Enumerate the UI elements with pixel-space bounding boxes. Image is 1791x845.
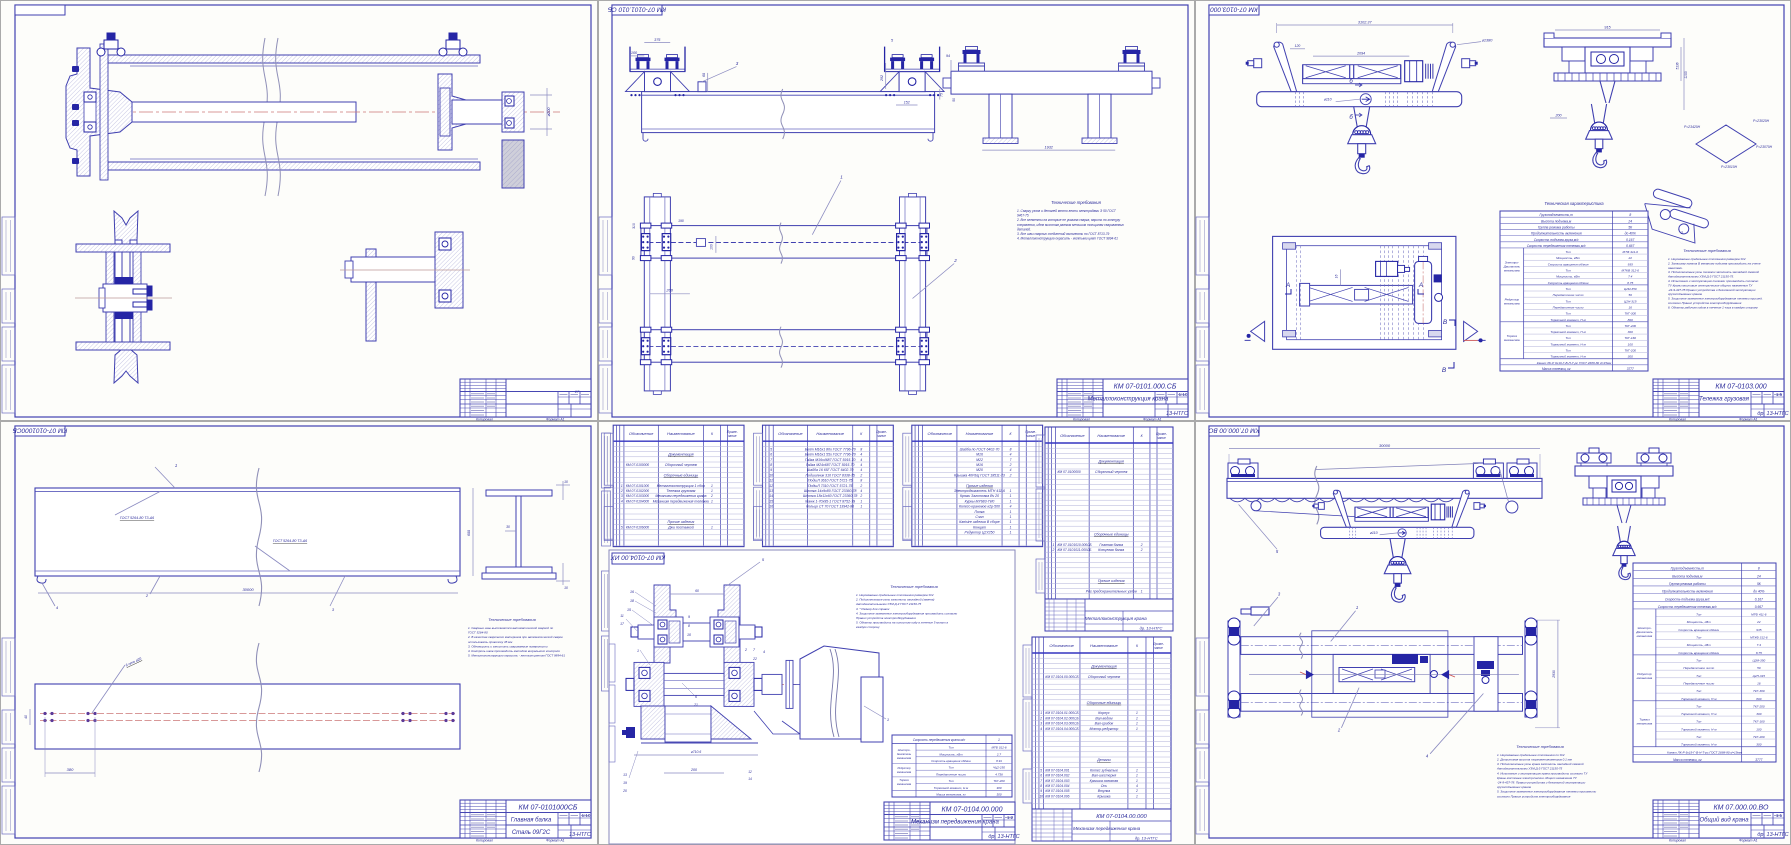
svg-text:1: 1 (621, 484, 623, 488)
svg-text:механизма: механизма (897, 756, 912, 760)
svg-text:Кольцо СТ 70 ГОСТ 13942-86: Кольцо СТ 70 ГОСТ 13942-86 (806, 505, 854, 509)
svg-text:Наименование: Наименование (966, 431, 994, 436)
svg-text:60: 60 (695, 589, 699, 593)
svg-text:Джи поставкой: Джи поставкой (667, 525, 694, 529)
svg-text:каждую сторону: каждую сторону (856, 625, 880, 629)
svg-text:2: 2 (1140, 543, 1143, 547)
svg-text:1: 1 (175, 463, 177, 468)
svg-text:Передаточное число: Передаточное число (1553, 305, 1584, 309)
svg-text:КМ 07-0104.004: КМ 07-0104.004 (1045, 784, 1069, 788)
svg-text:Скорость вращения об/мин: Скорость вращения об/мин (1678, 651, 1719, 655)
svg-text:4: 4 (621, 499, 623, 503)
svg-text:КМ 07-0104.02.000СБ: КМ 07-0104.02.000СБ (1045, 716, 1079, 720)
svg-text:1: 1 (1010, 525, 1012, 529)
svg-text:1: 1 (711, 489, 713, 493)
svg-text:⌀110: ⌀110 (1370, 531, 1378, 535)
svg-text:М20: М20 (976, 468, 983, 472)
svg-text:16: 16 (1629, 305, 1633, 309)
svg-text:7.4: 7.4 (1757, 643, 1762, 647)
svg-text:Сборочные единицы: Сборочные единицы (1087, 701, 1122, 705)
svg-text:4: 4 (56, 605, 59, 610)
svg-text:4: 4 (1010, 453, 1012, 457)
svg-text:1. Сварные швы выполняются авт: 1. Сварные швы выполняются автоматическо… (468, 626, 554, 630)
svg-text:1: 1 (1010, 520, 1012, 524)
svg-text:Шпонка 14х9х80 ГОСТ 23360-78: Шпонка 14х9х80 ГОСТ 23360-78 (804, 489, 857, 493)
svg-text:ГОСТ 5264-80: ГОСТ 5264-80 (468, 631, 488, 635)
svg-text:Формат А1: Формат А1 (1739, 839, 1758, 843)
svg-text:Крышка сквозная: Крышка сквозная (1090, 779, 1119, 783)
svg-text:50: 50 (1757, 666, 1761, 670)
svg-text:Механизм передвижения тележки: Механизм передвижения тележки (653, 499, 709, 503)
svg-text:Прочие изделия: Прочие изделия (668, 520, 695, 524)
svg-text:P=23070Н: P=23070Н (1756, 145, 1773, 149)
svg-text:8.75: 8.75 (1756, 651, 1762, 655)
svg-text:Передаточное число: Передаточное число (1683, 666, 1714, 670)
svg-text:Концат: Концат (973, 525, 986, 529)
svg-text:8: 8 (1010, 447, 1012, 451)
svg-text:375: 375 (654, 38, 661, 42)
svg-text:КМ 07-0101.010 СБ: КМ 07-0101.010 СБ (608, 6, 666, 13)
svg-text:Прочие изделия: Прочие изделия (966, 484, 993, 488)
svg-text:Технические требования: Технические требования (488, 617, 536, 622)
svg-text:Главная балка: Главная балка (1099, 543, 1123, 547)
svg-text:5: 5 (770, 447, 772, 451)
svg-text:М22: М22 (976, 458, 983, 462)
svg-text:30: 30 (506, 525, 510, 529)
svg-text:1:5: 1:5 (1776, 392, 1783, 397)
svg-text:Крюки Заготовка Вч 20: Крюки Заготовка Вч 20 (960, 494, 999, 498)
svg-text:9: 9 (688, 615, 690, 619)
svg-text:1: 1 (1136, 716, 1138, 720)
svg-text:Ц2Н-315: Ц2Н-315 (1753, 674, 1766, 678)
svg-text:механизма: механизма (1637, 676, 1653, 680)
svg-text:Манж 1-70х95-1 ГОСТ 8752-79: Манж 1-70х95-1 ГОСТ 8752-79 (805, 499, 855, 503)
svg-text:9467-75: 9467-75 (1017, 214, 1029, 218)
svg-text:3. Обезжирить и зачистить свар: 3. Обезжирить и зачистить свариваемые по… (468, 644, 548, 648)
svg-text:грузоподъемных кранов: грузоподъемных кранов (1668, 292, 1702, 296)
svg-text:Тип: Тип (1565, 299, 1571, 303)
svg-text:КМ 07-0100000: КМ 07-0100000 (626, 463, 649, 467)
svg-text:Рег предохранительных узлов: Рег предохранительных узлов (1086, 590, 1137, 594)
svg-text:КМ 07-0101011.000СБ: КМ 07-0101011.000СБ (1057, 548, 1092, 552)
svg-text:Тип: Тип (1565, 312, 1571, 316)
svg-text:ТКГ-160: ТКГ-160 (1624, 336, 1636, 340)
svg-text:2. Все элементы на которые не: 2. Все элементы на которые не указана св… (1016, 218, 1120, 222)
svg-text:ТКГ-200: ТКГ-200 (1624, 349, 1636, 353)
svg-text:Болт М16х1 80х ГОСТ 7796-70: Болт М16х1 80х ГОСТ 7796-70 (805, 447, 856, 451)
svg-text:13: 13 (769, 489, 773, 493)
svg-text:Тип: Тип (1696, 613, 1702, 617)
svg-text:Мотор-редуктор: Мотор-редуктор (1090, 727, 1119, 731)
svg-text:Тип: Тип (948, 766, 953, 770)
svg-text:согласно Правил устройств элек: согласно Правил устройств электрооборудо… (1668, 301, 1742, 305)
svg-text:7: 7 (770, 458, 772, 462)
svg-text:2: 2 (145, 593, 149, 598)
svg-text:механизма: механизма (897, 770, 912, 774)
svg-text:Автодвигательными УЗМ Д-3 ГОСТ: Автодвигательными УЗМ Д-3 ГОСТ 21150-75 (855, 602, 922, 606)
svg-text:КМ 07-0103.000: КМ 07-0103.000 (1715, 384, 1766, 391)
svg-text:1: 1 (1040, 711, 1042, 715)
svg-text:3102.37: 3102.37 (1358, 21, 1373, 25)
svg-text:Вал-грибок: Вал-грибок (1095, 722, 1114, 726)
svg-text:В: В (1442, 367, 1447, 374)
svg-text:94: 94 (946, 54, 950, 58)
svg-text:Передаточное число: Передаточное число (936, 772, 966, 776)
svg-text:Металлоконструкция крана: Металлоконструкция крана (1088, 397, 1169, 403)
svg-text:Тип: Тип (1696, 735, 1702, 739)
svg-text:4. Контроль швов производить м: 4. Контроль швов производить методом виз… (468, 649, 560, 653)
svg-text:КМ 07-0103000: КМ 07-0103000 (626, 494, 649, 498)
svg-text:21: 21 (693, 703, 698, 707)
svg-text:9: 9 (1040, 789, 1042, 793)
svg-text:4. Защитное заземление электро: 4. Защитное заземление электрооборудован… (856, 611, 958, 615)
svg-text:3: 3 (736, 61, 739, 66)
svg-text:1: 1 (1010, 515, 1012, 519)
svg-text:200: 200 (1555, 114, 1562, 118)
svg-text:Скорость вращения об/мин: Скорость вращения об/мин (931, 759, 971, 763)
svg-text:КМ 07-0101000: КМ 07-0101000 (626, 484, 649, 488)
svg-text:Ось: Ось (1101, 784, 1107, 788)
svg-text:2: 2 (859, 494, 862, 498)
svg-text:60: 60 (702, 73, 706, 77)
svg-text:300: 300 (996, 793, 1001, 797)
svg-text:Краны мостовые электрические: Краны мостовые электрические общего назн… (1497, 776, 1578, 780)
svg-text:2: 2 (1052, 548, 1055, 552)
svg-text:19: 19 (623, 781, 627, 785)
svg-text:1100: 1100 (1684, 71, 1688, 78)
svg-text:Электродвигатель МТН 411-6: Электродвигатель МТН 411-6 (954, 489, 1005, 493)
svg-text:P=23420Н: P=23420Н (1684, 125, 1701, 129)
svg-text:6: 6 (1040, 774, 1042, 778)
svg-text:Мощность, кВт: Мощность, кВт (1687, 643, 1711, 647)
svg-text:24: 24 (1627, 219, 1632, 223)
svg-text:грузоподъемных кранов: грузоподъемных кранов (1497, 785, 1531, 789)
svg-text:Тормозной момент, Н·м: Тормозной момент, Н·м (1681, 727, 1717, 731)
svg-text:10: 10 (769, 473, 773, 477)
svg-text:КМ 07.000.00 ВО: КМ 07.000.00 ВО (1208, 427, 1259, 434)
svg-text:Полка: Полка (974, 510, 984, 514)
svg-text:Механизм передвижения крана: Механизм передвижения крана (655, 494, 706, 498)
svg-text:800: 800 (1756, 697, 1761, 701)
svg-text:др. 13-НТГС: др. 13-НТГС (1757, 832, 1788, 838)
svg-text:Тип: Тип (948, 746, 953, 750)
svg-text:согласно Правил устройств элек: согласно Правил устройств электрооборудо… (1497, 794, 1571, 798)
svg-text:1: 1 (1010, 531, 1012, 535)
svg-text:КМ 07-0104.00.000: КМ 07-0104.00.000 (942, 807, 1003, 814)
svg-text:зависовки.: зависовки. (1667, 266, 1683, 270)
svg-text:Скорость вращения об/мин: Скорость вращения об/мин (1548, 281, 1589, 285)
svg-text:КМ 07-0104.04.000СБ: КМ 07-0104.04.000СБ (1045, 727, 1079, 731)
svg-text:Сборочный чертеж: Сборочный чертеж (1088, 675, 1121, 679)
svg-text:8: 8 (860, 447, 862, 451)
svg-text:Шайба по ГОСТ 6402-70: Шайба по ГОСТ 6402-70 (960, 447, 1000, 451)
svg-text:Крышка 40РБЦ ГОСТ 18511-73: Крышка 40РБЦ ГОСТ 18511-73 (954, 473, 1005, 477)
svg-text:КМ 07-0104.005: КМ 07-0104.005 (1045, 789, 1069, 793)
svg-text:ПодшЛ 7310 ГОСТ 5721-75: ПодшЛ 7310 ГОСТ 5721-75 (808, 484, 852, 488)
svg-text:5136: 5136 (1676, 62, 1680, 69)
svg-text:3. Все швы сварных соединений: 3. Все швы сварных соединений выполнять … (1017, 232, 1110, 236)
svg-text:КМ 07-0104.001: КМ 07-0104.001 (1045, 768, 1069, 772)
svg-text:Мощность, кВт: Мощность, кВт (939, 752, 963, 756)
svg-text:100: 100 (1756, 727, 1761, 731)
svg-text:1. Неуказанные предельные откл: 1. Неуказанные предельные отклонения раз… (1668, 257, 1746, 261)
svg-text:Крышка: Крышка (1097, 794, 1110, 798)
svg-text:3777: 3777 (1627, 367, 1634, 371)
svg-text:190: 190 (678, 219, 684, 223)
svg-text:8: 8 (1758, 567, 1760, 571)
svg-text:2: 2 (1009, 463, 1012, 467)
svg-text:935: 935 (1756, 628, 1761, 632)
svg-text:МТФ 411-6: МТФ 411-6 (1751, 613, 1767, 617)
svg-text:механизма: механизма (1504, 268, 1520, 272)
svg-text:16: 16 (769, 505, 773, 509)
svg-text:ЧЦ2-250: ЧЦ2-250 (993, 766, 1005, 770)
svg-text:Тип: Тип (1696, 720, 1702, 724)
svg-text:40: 40 (24, 715, 28, 719)
svg-text:2930: 2930 (1552, 670, 1556, 679)
svg-text:4: 4 (763, 650, 765, 654)
svg-text:5. Обкатку производить на холо: 5. Обкатку производить на холостом ходу … (856, 621, 948, 625)
svg-text:17: 17 (575, 389, 580, 394)
svg-text:8: 8 (860, 479, 862, 483)
svg-text:механизма: механизма (1637, 634, 1653, 638)
svg-text:6 отв ⌀20: 6 отв ⌀20 (125, 657, 142, 668)
svg-text:МТФ 411-6: МТФ 411-6 (1623, 250, 1639, 254)
svg-text:935: 935 (1628, 262, 1633, 266)
svg-text:800: 800 (1628, 318, 1633, 322)
svg-text:1: 1 (711, 484, 713, 488)
svg-text:Тип: Тип (1696, 689, 1702, 693)
svg-text:механизма: механизма (1504, 338, 1520, 342)
svg-text:P=23020Н: P=23020Н (1753, 119, 1770, 123)
svg-text:3: 3 (1278, 592, 1281, 597)
svg-text:Тип: Тип (948, 779, 953, 783)
svg-text:Скорость передвижения тележки,: Скорость передвижения тележки,м/с (1527, 244, 1586, 248)
svg-text:Тормозной момент, Н·м: Тормозной момент, Н·м (1550, 330, 1586, 334)
svg-text:КМ 07-0104000: КМ 07-0104000 (626, 499, 649, 503)
svg-text:0.167: 0.167 (1755, 597, 1763, 601)
svg-text:5: 5 (621, 525, 623, 529)
svg-text:Масса тележки, кг: Масса тележки, кг (1673, 758, 1702, 762)
svg-text:1: 1 (1356, 605, 1358, 610)
svg-text:Высота подъема,м: Высота подъема,м (1672, 574, 1703, 578)
svg-text:7: 7 (1010, 458, 1012, 462)
svg-text:механизма: механизма (1637, 722, 1653, 726)
svg-text:14: 14 (769, 494, 773, 498)
svg-text:1: 1 (1010, 489, 1012, 493)
svg-text:1: 1 (1010, 494, 1012, 498)
svg-text:4.736: 4.736 (995, 772, 1003, 776)
svg-text:1: 1 (840, 175, 843, 180)
svg-text:КМ 07.000.00.ВО: КМ 07.000.00.ВО (1714, 805, 1770, 812)
svg-text:КМ 07-0104.01.000СБ: КМ 07-0104.01.000СБ (1045, 711, 1079, 715)
svg-text:1. Неуказанные предельные откл: 1. Неуказанные предельные отклонения по … (1497, 753, 1565, 757)
svg-text:Скорость вращения об/мин: Скорость вращения об/мин (1678, 628, 1719, 632)
svg-text:310: 310 (632, 223, 636, 229)
svg-text:ТКГ-200: ТКГ-200 (1624, 324, 1636, 328)
svg-text:6: 6 (770, 453, 772, 457)
svg-text:др. 13-НТГС: др. 13-НТГС (1140, 626, 1163, 631)
svg-text:1. Неуказанные предельные откл: 1. Неуказанные предельные отклонения раз… (856, 593, 934, 597)
svg-text:10: 10 (564, 480, 568, 484)
svg-text:3: 3 (621, 494, 623, 498)
svg-text:Скорость вращения об/мин: Скорость вращения об/мин (1548, 262, 1589, 266)
svg-text:15: 15 (627, 608, 631, 612)
svg-text:Вал ведом: Вал ведом (1095, 716, 1113, 720)
svg-text:М16: М16 (976, 463, 983, 467)
svg-text:ТКГ-200: ТКГ-200 (1753, 735, 1765, 739)
svg-text:50: 50 (1629, 293, 1633, 297)
svg-text:Документация: Документация (1098, 460, 1124, 464)
svg-text:Скорость подъема груза,м/с: Скорость подъема груза,м/с (1665, 597, 1710, 601)
svg-text:0.667: 0.667 (1626, 244, 1634, 248)
svg-text:1: 1 (860, 499, 862, 503)
svg-text:В: В (1443, 319, 1448, 326)
svg-text:8.91: 8.91 (996, 759, 1002, 763)
svg-text:Сборочные единицы: Сборочные единицы (1094, 532, 1129, 536)
svg-text:5. Металлоконструкцию окрасить: 5. Металлоконструкцию окрасить - желтым … (468, 654, 565, 658)
svg-text:2. Допустимая высота торможени: 2. Допустимая высота торможенияометров 0… (1496, 758, 1572, 762)
svg-text:4: 4 (1040, 727, 1042, 731)
svg-text:Обозначение: Обозначение (1060, 433, 1085, 438)
svg-text:13-НТГС: 13-НТГС (1166, 411, 1188, 417)
svg-text:4: 4 (1010, 505, 1012, 509)
svg-text:5: 5 (1276, 549, 1279, 554)
svg-text:Тип: Тип (1565, 349, 1571, 353)
svg-text:КМ 07-0101000СБ: КМ 07-0101000СБ (13, 427, 68, 434)
svg-text:МТФ 012-6: МТФ 012-6 (991, 746, 1006, 750)
svg-text:использовать проволоку 45 мм: использовать проволоку 45 мм (468, 640, 512, 644)
svg-text:Грузоподъемность,т: Грузоподъемность,т (1671, 567, 1705, 571)
svg-text:Мощность, кВт: Мощность, кВт (1556, 275, 1580, 279)
svg-text:Тормозной момент, Н·м: Тормозной момент, Н·м (1681, 697, 1717, 701)
svg-text:100: 100 (631, 51, 638, 55)
svg-text:Продолжительность включения: Продолжительность включения (1662, 590, 1713, 594)
svg-text:1932: 1932 (1044, 146, 1053, 150)
svg-text:2: 2 (1140, 548, 1143, 552)
svg-text:2. Запасовку каната В механизм: 2. Запасовку каната В механизм подъема п… (1667, 261, 1761, 265)
svg-text:КМ 07-0104.00.000: КМ 07-0104.00.000 (1096, 814, 1147, 820)
svg-text:1: 1 (1136, 779, 1138, 783)
svg-text:Тележка грузовая: Тележка грузовая (666, 489, 695, 493)
svg-text:МТКФ 312-6: МТКФ 312-6 (1750, 636, 1768, 640)
svg-text:15: 15 (769, 499, 773, 503)
svg-text:⌀110: ⌀110 (1324, 98, 1332, 102)
svg-text:7.4: 7.4 (1628, 275, 1633, 279)
svg-text:Тип: Тип (1565, 324, 1571, 328)
svg-text:Обозначение: Обозначение (1049, 643, 1074, 648)
svg-text:6. Обкатку рабочим ходом в теч: 6. Обкатку рабочим ходом в течение 1 час… (1668, 305, 1758, 309)
svg-text:ТКГ-300: ТКГ-300 (1753, 689, 1765, 693)
svg-text:Мощность, кВт: Мощность, кВт (1687, 620, 1711, 624)
svg-text:КМ 07-0101000СБ: КМ 07-0101000СБ (519, 805, 578, 812)
svg-text:Прочие изделия: Прочие изделия (1098, 579, 1125, 583)
svg-text:2.7: 2.7 (996, 752, 1002, 756)
svg-text:1: 1 (1136, 794, 1138, 798)
svg-text:4. Металлоконструкцию окрасить: 4. Металлоконструкцию окрасить - желтыми… (1017, 237, 1118, 241)
svg-text:3. * Размер для справок: 3. * Размер для справок (856, 607, 890, 611)
svg-text:Правил устройств электрооборуд: Правил устройств электрооборудования (856, 616, 916, 620)
svg-text:152: 152 (904, 101, 910, 105)
svg-text:ПодшЛ 3610 ГОСТ 5721-75: ПодшЛ 3610 ГОСТ 5721-75 (808, 479, 852, 483)
svg-text:4. Испытания и эксплуатацию те: 4. Испытания и эксплуатацию тележки прои… (1668, 279, 1759, 283)
svg-text:Тип: Тип (1565, 287, 1571, 291)
svg-text:380: 380 (67, 767, 74, 772)
svg-text:9: 9 (770, 468, 772, 472)
svg-text:Технические требования: Технические требования (1683, 248, 1731, 253)
svg-text:1: 1 (1136, 768, 1138, 772)
svg-text:Корпус: Корпус (1098, 711, 1110, 715)
svg-text:Автодвигательными УЗМ Д-3 ГОСТ: Автодвигательными УЗМ Д-3 ГОСТ 21150-75. (1667, 275, 1734, 279)
svg-text:сопряжения, идем высотам равны: сопряжения, идем высотам равным меньшим … (1017, 223, 1124, 227)
svg-text:1: 1 (1010, 510, 1012, 514)
svg-text:600: 600 (467, 530, 471, 536)
svg-text:Металлоконструкция крана: Металлоконструкция крана (1085, 616, 1147, 621)
svg-text:75: 75 (940, 93, 944, 97)
svg-text:Масса тележки, кг: Масса тележки, кг (1542, 367, 1571, 371)
svg-text:11: 11 (769, 479, 773, 483)
svg-text:Передаточное число: Передаточное число (1683, 681, 1714, 685)
svg-text:Подшипник 310 ГОСТ 8338-75: Подшипник 310 ГОСТ 8338-75 (805, 473, 854, 477)
svg-text:др. 13-НТГС: др. 13-НТГС (988, 834, 1019, 840)
svg-text:10: 10 (564, 586, 568, 590)
svg-text:1:2: 1:2 (1007, 815, 1014, 820)
svg-text:ТКГ-300: ТКГ-300 (1624, 312, 1636, 316)
svg-text:-24-9-437-78. Правил устройств: -24-9-437-78. Правил устройства и безопа… (1497, 781, 1586, 785)
svg-text:А: А (1285, 282, 1290, 289)
svg-text:чание: чание (877, 434, 886, 438)
svg-text:13-НТГС: 13-НТГС (569, 832, 591, 838)
svg-text:22: 22 (1756, 620, 1761, 624)
svg-text:0.167: 0.167 (1626, 238, 1634, 242)
svg-text:Втулка: Втулка (1098, 789, 1111, 793)
svg-text:Наименование: Наименование (667, 431, 695, 436)
svg-text:ТКГ-200: ТКГ-200 (1753, 704, 1765, 708)
svg-text:22: 22 (1628, 256, 1633, 260)
svg-text:Формат А1: Формат А1 (546, 839, 565, 843)
svg-text:КМ 07-0104.03.000СБ: КМ 07-0104.03.000СБ (1045, 722, 1079, 726)
svg-text:7: 7 (1040, 779, 1042, 783)
svg-text:Котес зубчатые: Котес зубчатые (1090, 768, 1118, 772)
svg-text:др. 13-НТГС: др. 13-НТГС (1757, 411, 1788, 417)
svg-text:1: 1 (1141, 590, 1143, 594)
svg-text:300: 300 (1628, 355, 1633, 359)
svg-text:Главная балка: Главная балка (511, 818, 552, 824)
svg-text:20: 20 (622, 789, 627, 793)
svg-text:200: 200 (665, 288, 673, 293)
svg-text:Скорость передвижения крана м/: Скорость передвижения крана м/с (913, 738, 966, 742)
svg-text:8: 8 (1040, 784, 1042, 788)
svg-text:5. Защитное заземление электро: 5. Защитное заземление электрооборудован… (1668, 297, 1763, 301)
svg-text:4: 4 (1010, 468, 1012, 472)
svg-text:механизма: механизма (1504, 301, 1520, 305)
svg-text:Высота подъема,м: Высота подъема,м (1541, 219, 1572, 223)
svg-text:2. В качестве сварочного матер: 2. В качестве сварочного материала при а… (467, 635, 563, 639)
svg-text:Технические требования: Технические требования (1516, 744, 1564, 749)
svg-text:5. Защитное заземление электро: 5. Защитное заземление электрооборудован… (1497, 790, 1597, 794)
svg-text:5: 5 (891, 39, 894, 43)
svg-text:Ц2Н-315: Ц2Н-315 (1624, 299, 1637, 303)
svg-text:ГОСТ 5264-80 Т3-Δ6: ГОСТ 5264-80 Т3-Δ6 (120, 516, 154, 520)
svg-text:чание: чание (1157, 436, 1166, 440)
svg-text:2: 2 (859, 473, 862, 477)
svg-text:90: 90 (632, 256, 636, 260)
svg-text:1: 1 (637, 649, 639, 653)
svg-text:Шпонка 18х11х60 ГОСТ 23360-78: Шпонка 18х11х60 ГОСТ 23360-78 (803, 494, 857, 498)
svg-text:КМ 07-0100000: КМ 07-0100000 (1057, 470, 1080, 474)
svg-text:3777: 3777 (1755, 758, 1762, 762)
svg-text:Автодвигательными УЗМ Д-3 ГОСТ: Автодвигательными УЗМ Д-3 ГОСТ 21150-75 (1496, 767, 1563, 771)
